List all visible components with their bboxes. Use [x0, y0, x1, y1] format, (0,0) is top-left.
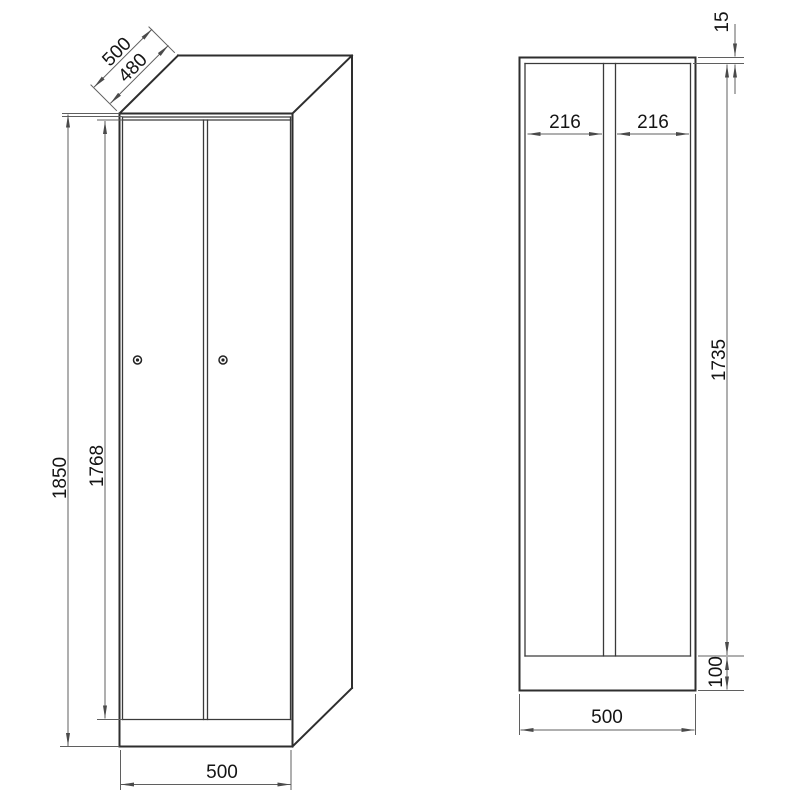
dim-front-width: 500 — [121, 750, 292, 790]
front-view: 1850 1768 500 500 480 — [50, 27, 352, 790]
dim-door-height-label: 1768 — [87, 445, 108, 487]
front-view-cabinet-outline — [120, 56, 353, 747]
dim-section-width-label: 500 — [591, 707, 623, 728]
dim-plinth-height: 100 — [698, 656, 744, 690]
dim-section-width: 500 — [520, 694, 696, 735]
section-view: 216 216 15 1735 100 — [520, 11, 745, 735]
locker-drawing-page: 1850 1768 500 500 480 — [0, 0, 800, 800]
dim-interior-height: 1735 — [698, 65, 744, 657]
dim-left-compartment: 216 — [528, 112, 603, 134]
section-view-outline — [520, 58, 696, 691]
front-view-doors — [123, 120, 291, 720]
dim-top-offset-label: 15 — [712, 11, 733, 32]
dim-door-height: 1768 — [87, 120, 123, 720]
dim-top-offset: 15 — [693, 11, 744, 94]
dim-total-height: 1850 — [50, 114, 122, 747]
section-view-interior — [525, 64, 691, 657]
lock-cylinder-right-icon — [219, 356, 227, 364]
dim-left-compartment-label: 216 — [549, 112, 581, 133]
locker-dimension-drawing: 1850 1768 500 500 480 — [0, 0, 800, 800]
dim-front-width-label: 500 — [206, 762, 238, 783]
dim-depth: 500 480 — [91, 27, 175, 111]
dim-right-compartment-label: 216 — [637, 112, 669, 133]
dim-total-height-label: 1850 — [50, 457, 71, 499]
dim-plinth-height-label: 100 — [706, 656, 727, 688]
lock-cylinder-left-icon — [134, 356, 142, 364]
dim-right-compartment: 216 — [617, 112, 689, 134]
dim-interior-height-label: 1735 — [709, 339, 730, 381]
